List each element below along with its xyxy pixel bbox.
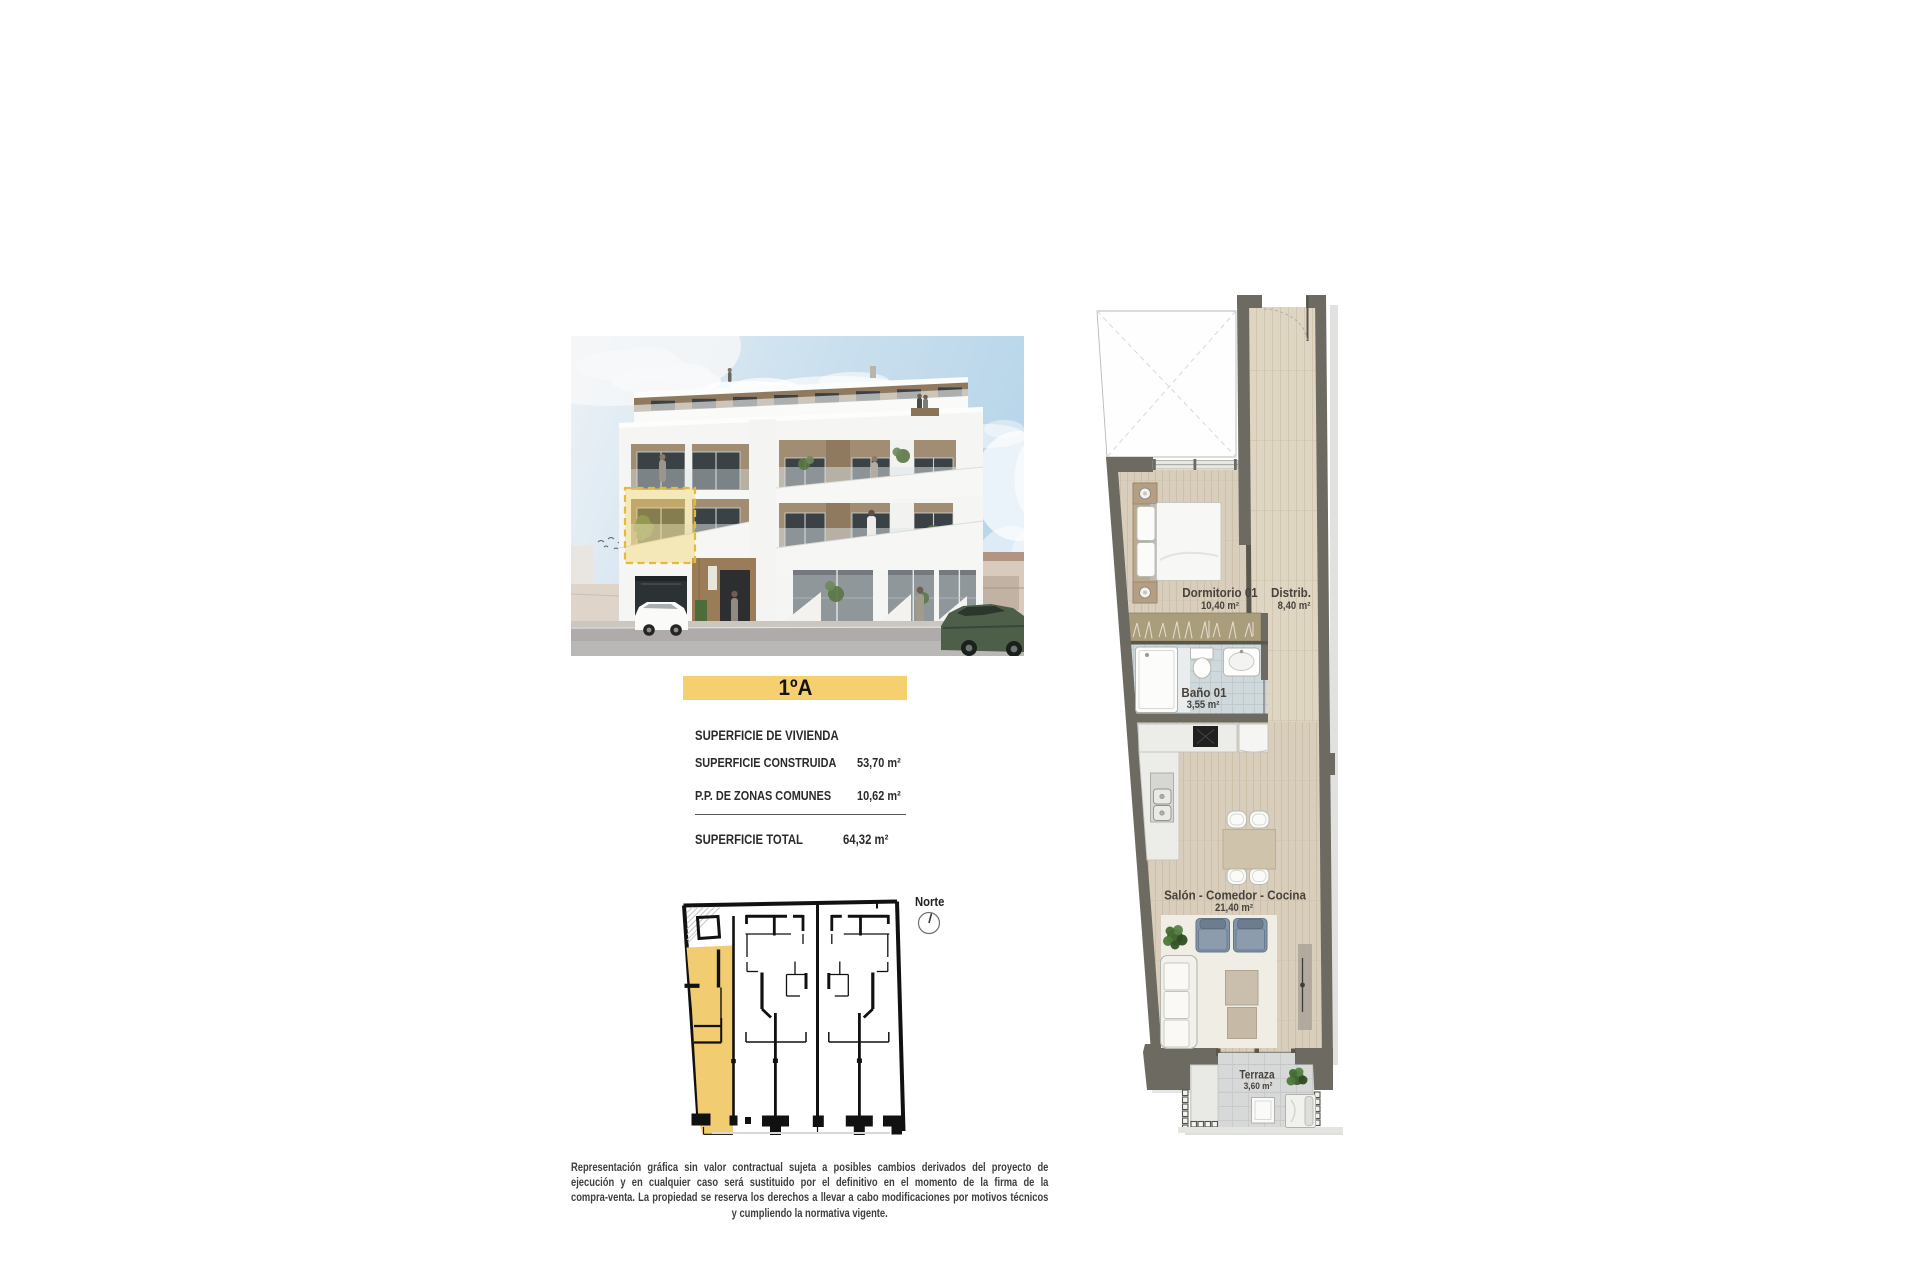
svg-text:21,40 m²: 21,40 m² (1215, 903, 1254, 915)
svg-text:Salón - Comedor - Cocina: Salón - Comedor - Cocina (1164, 888, 1306, 903)
svg-text:10,40 m²: 10,40 m² (1201, 601, 1240, 613)
svg-text:3,60 m²: 3,60 m² (1244, 1081, 1273, 1092)
svg-text:3,55 m²: 3,55 m² (1187, 700, 1220, 712)
svg-text:Distrib.: Distrib. (1271, 585, 1311, 600)
svg-text:8,40 m²: 8,40 m² (1278, 601, 1311, 613)
svg-text:Baño 01: Baño 01 (1181, 685, 1226, 700)
svg-text:Dormitorio 01: Dormitorio 01 (1182, 585, 1258, 600)
